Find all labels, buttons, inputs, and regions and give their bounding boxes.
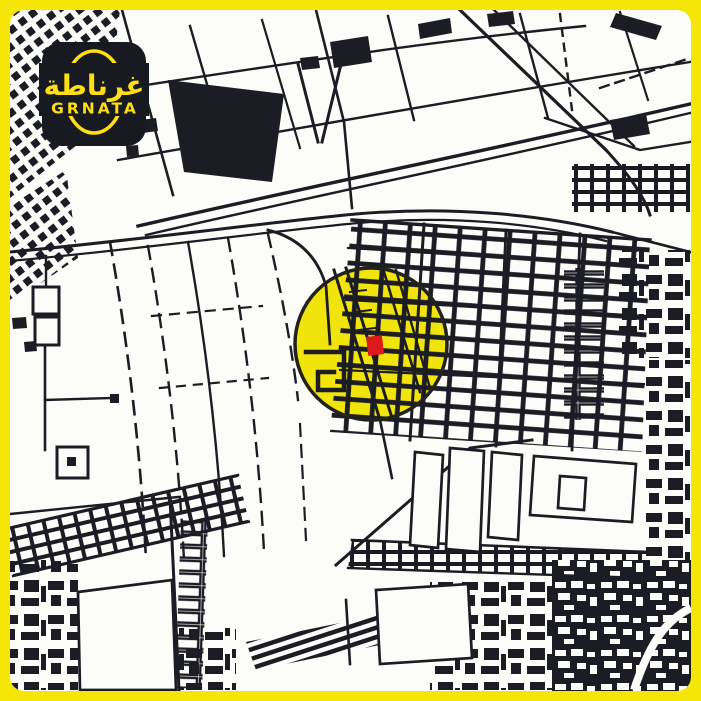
logo-arabic-wordmark: غرناطة	[44, 69, 145, 102]
logo-latin-wordmark: GRNATA	[51, 100, 139, 118]
location-marker	[366, 335, 384, 356]
map-canvas: غرناطة GRNATA	[0, 0, 701, 701]
brand-logo: غرناطة GRNATA	[39, 42, 149, 146]
property-location-image: غرناطة GRNATA	[0, 0, 701, 701]
